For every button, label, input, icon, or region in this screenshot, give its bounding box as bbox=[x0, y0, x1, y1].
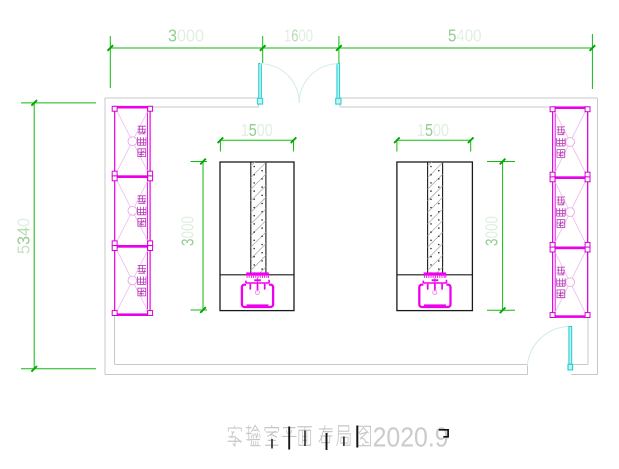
svg-text:5400: 5400 bbox=[448, 26, 482, 46]
svg-text:1500: 1500 bbox=[241, 120, 273, 140]
svg-text:3000: 3000 bbox=[168, 26, 204, 46]
svg-text:3000: 3000 bbox=[482, 216, 502, 246]
svg-text:2020.9: 2020.9 bbox=[373, 421, 449, 452]
svg-text:5340: 5340 bbox=[13, 218, 33, 254]
svg-text:1500: 1500 bbox=[417, 120, 449, 140]
svg-text:1600: 1600 bbox=[284, 26, 313, 46]
svg-text:3000: 3000 bbox=[178, 216, 198, 246]
